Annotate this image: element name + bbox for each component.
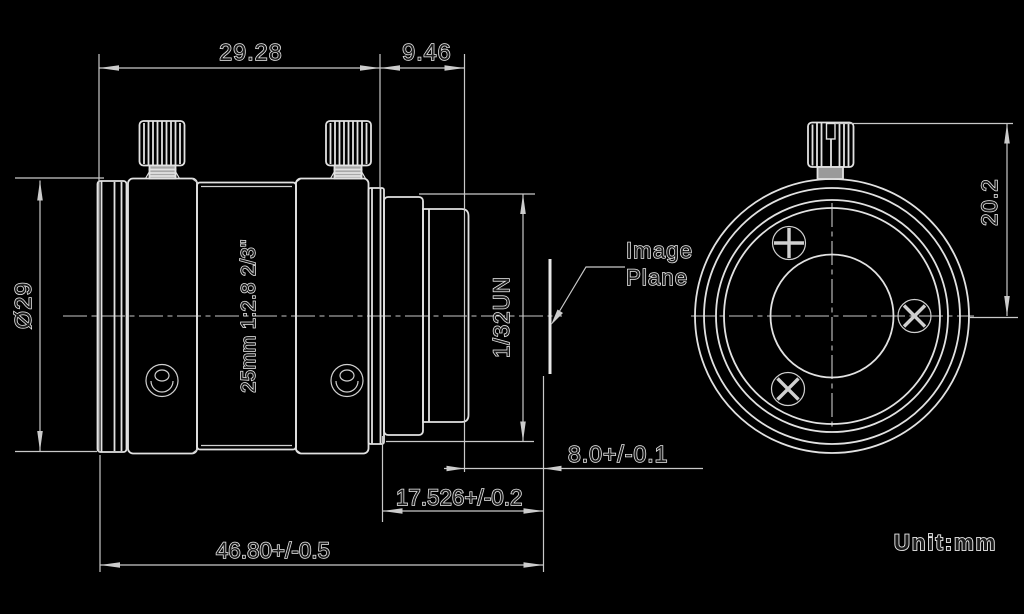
- svg-text:20.2: 20.2: [977, 178, 1002, 226]
- svg-text:29.28: 29.28: [219, 39, 283, 65]
- svg-text:17.526+/-0.2: 17.526+/-0.2: [396, 485, 523, 510]
- svg-text:Ø29: Ø29: [10, 281, 36, 329]
- svg-text:46.80+/-0.5: 46.80+/-0.5: [216, 538, 330, 563]
- svg-text:25mm 1:2.8 2/3": 25mm 1:2.8 2/3": [238, 239, 260, 393]
- svg-text:Unit:mm: Unit:mm: [894, 530, 997, 555]
- svg-text:Plane: Plane: [626, 265, 688, 290]
- svg-text:8.0+/-0.1: 8.0+/-0.1: [568, 441, 668, 467]
- svg-text:1/32UN: 1/32UN: [489, 276, 514, 358]
- svg-text:9.46: 9.46: [402, 39, 452, 65]
- svg-text:Image: Image: [626, 238, 693, 263]
